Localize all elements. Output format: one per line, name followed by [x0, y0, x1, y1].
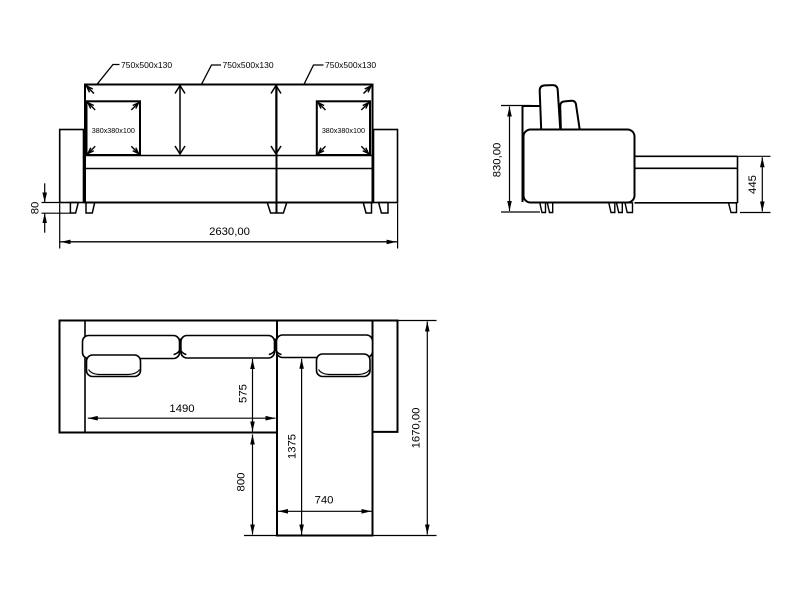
svg-text:740: 740 [315, 495, 334, 507]
svg-text:800: 800 [236, 473, 248, 492]
svg-text:750x500x130: 750x500x130 [121, 60, 172, 70]
svg-text:80: 80 [30, 202, 42, 215]
svg-text:1670,00: 1670,00 [410, 408, 422, 449]
svg-text:445: 445 [747, 175, 759, 194]
svg-text:575: 575 [238, 384, 250, 403]
svg-text:380x380x100: 380x380x100 [92, 126, 135, 135]
svg-text:750x500x130: 750x500x130 [223, 60, 274, 70]
svg-text:1375: 1375 [287, 434, 299, 459]
svg-text:1490: 1490 [169, 403, 194, 415]
svg-text:750x500x130: 750x500x130 [325, 60, 376, 70]
svg-text:830,00: 830,00 [492, 143, 504, 178]
svg-text:2630,00: 2630,00 [209, 226, 250, 238]
svg-text:380x380x100: 380x380x100 [322, 126, 365, 135]
